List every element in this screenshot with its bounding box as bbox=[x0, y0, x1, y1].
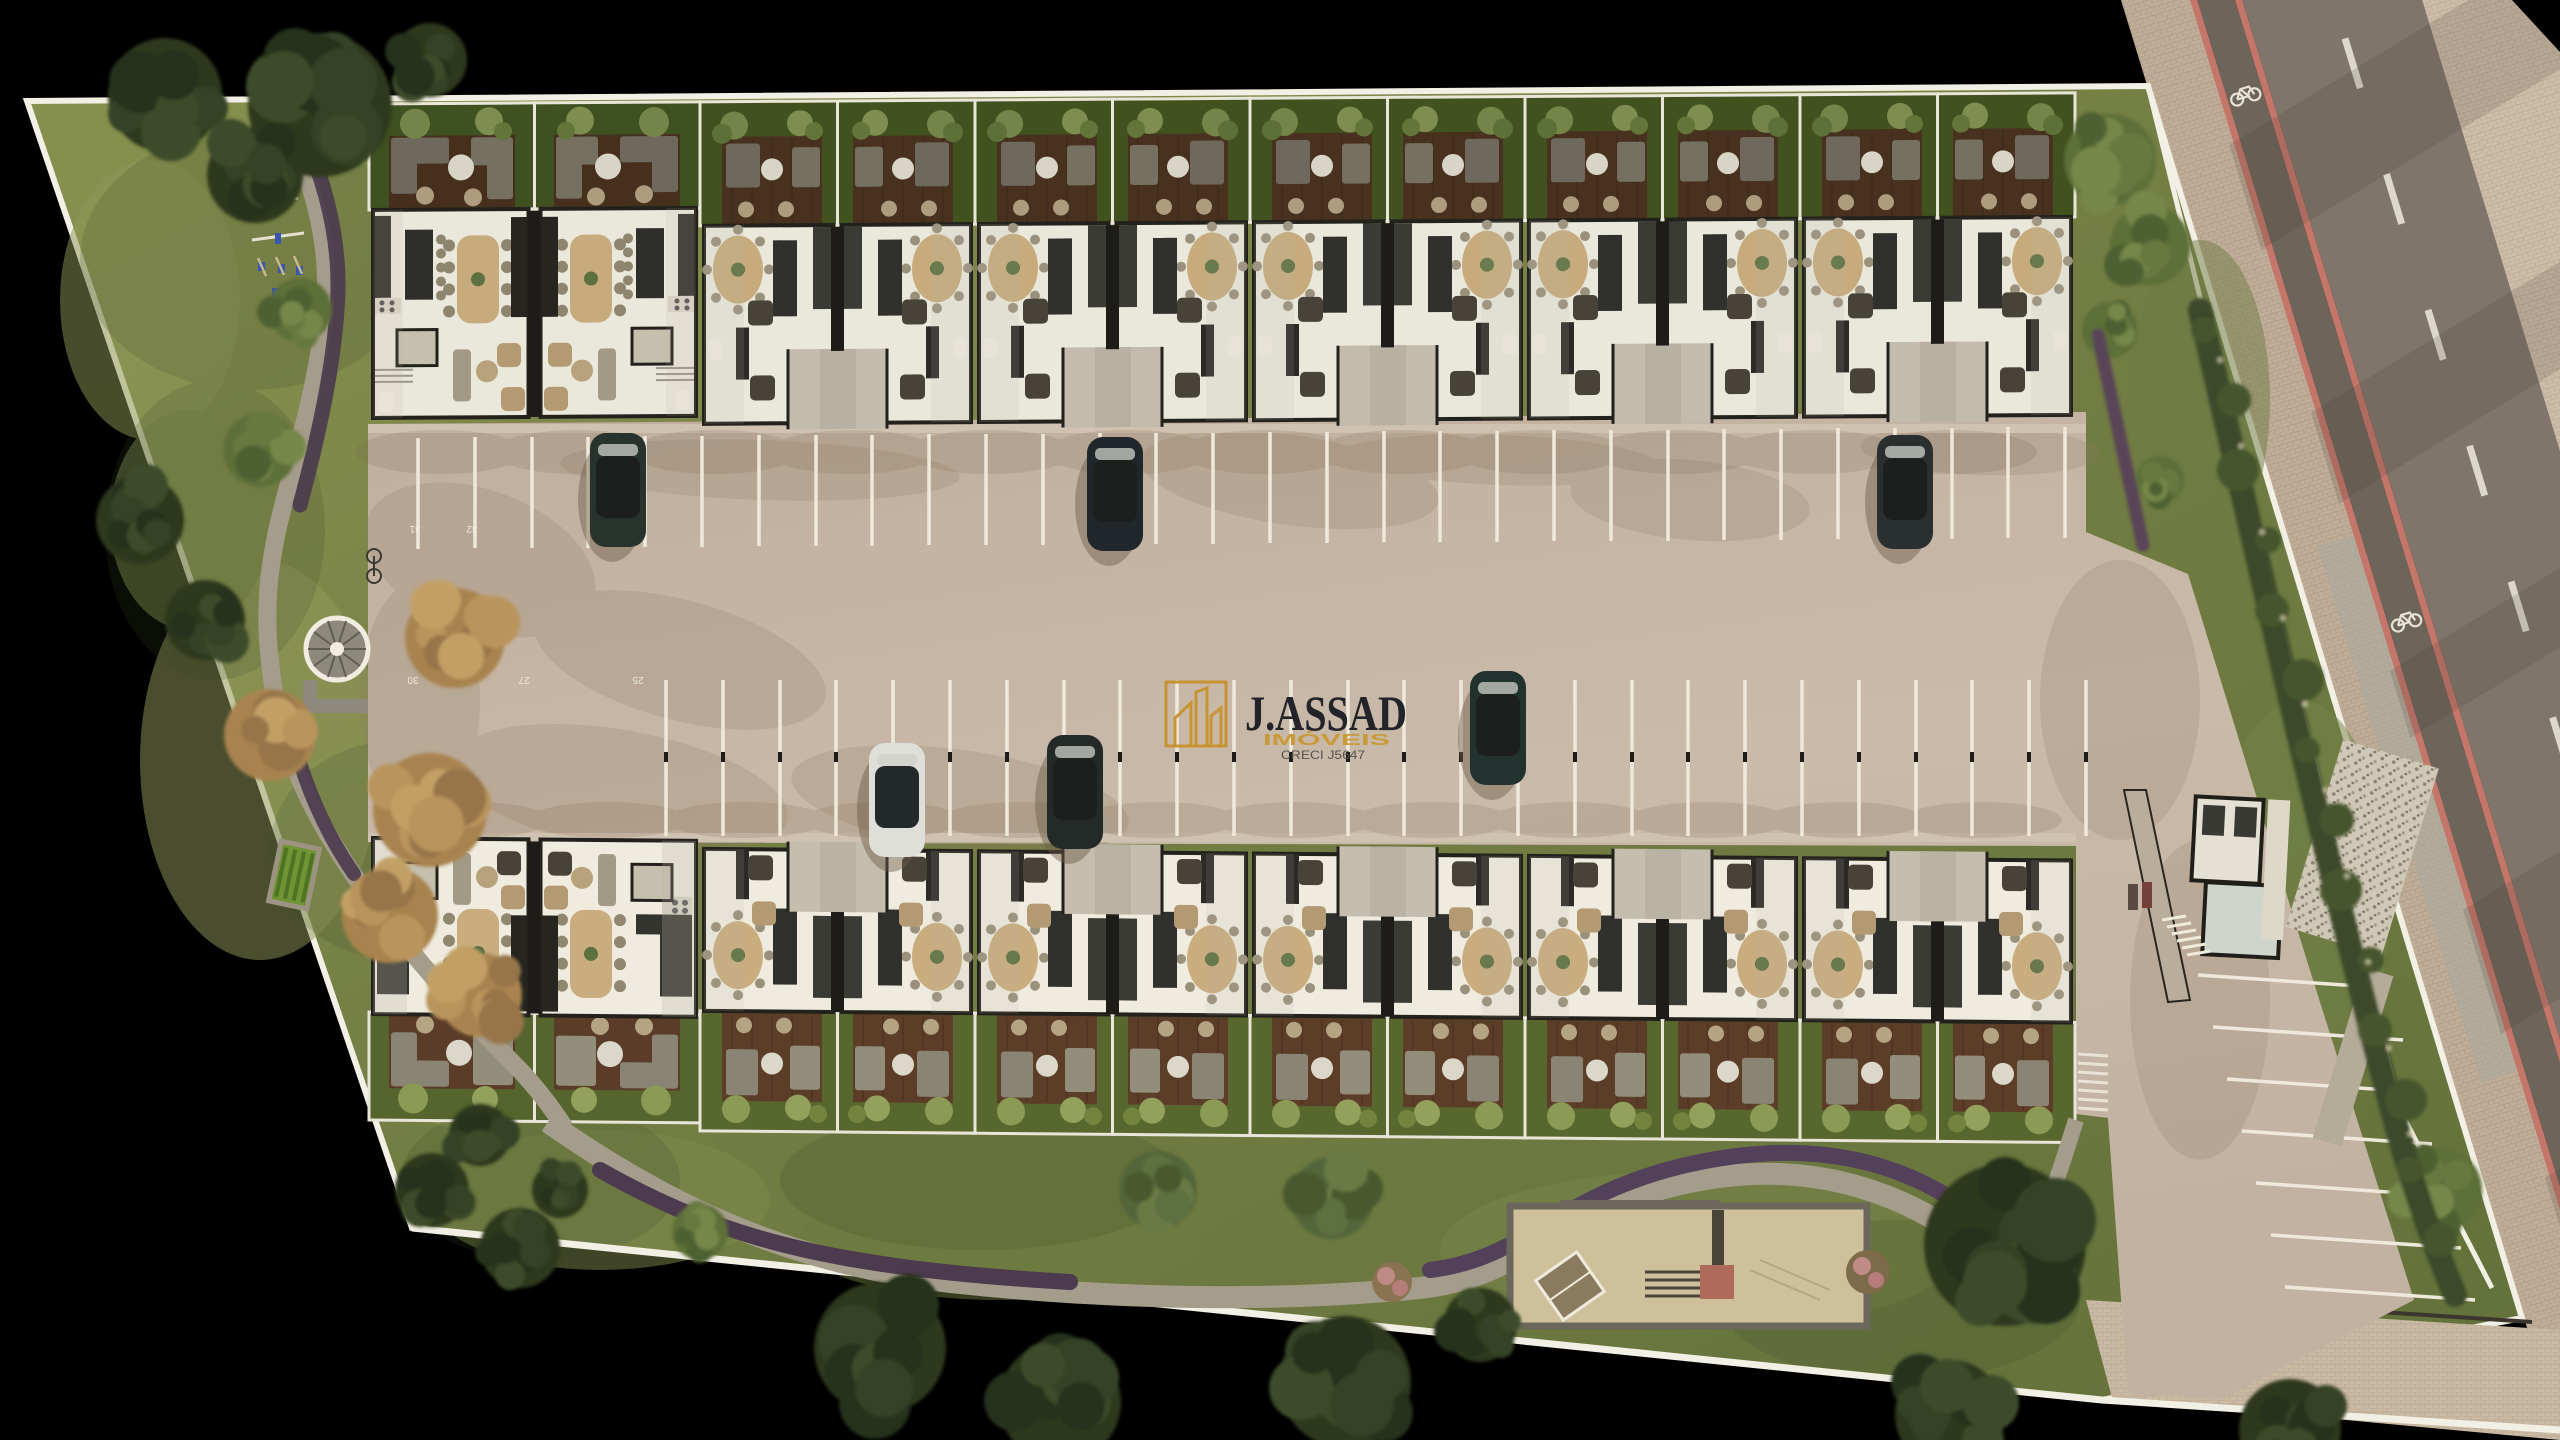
svg-text:25: 25 bbox=[632, 674, 644, 685]
svg-text:30: 30 bbox=[407, 674, 419, 685]
svg-text:31: 31 bbox=[409, 523, 421, 534]
svg-text:27: 27 bbox=[518, 674, 530, 685]
svg-text:IMÓVEIS: IMÓVEIS bbox=[1263, 731, 1390, 749]
svg-text:32: 32 bbox=[466, 523, 478, 534]
svg-text:CRECI J5647: CRECI J5647 bbox=[1281, 750, 1365, 762]
